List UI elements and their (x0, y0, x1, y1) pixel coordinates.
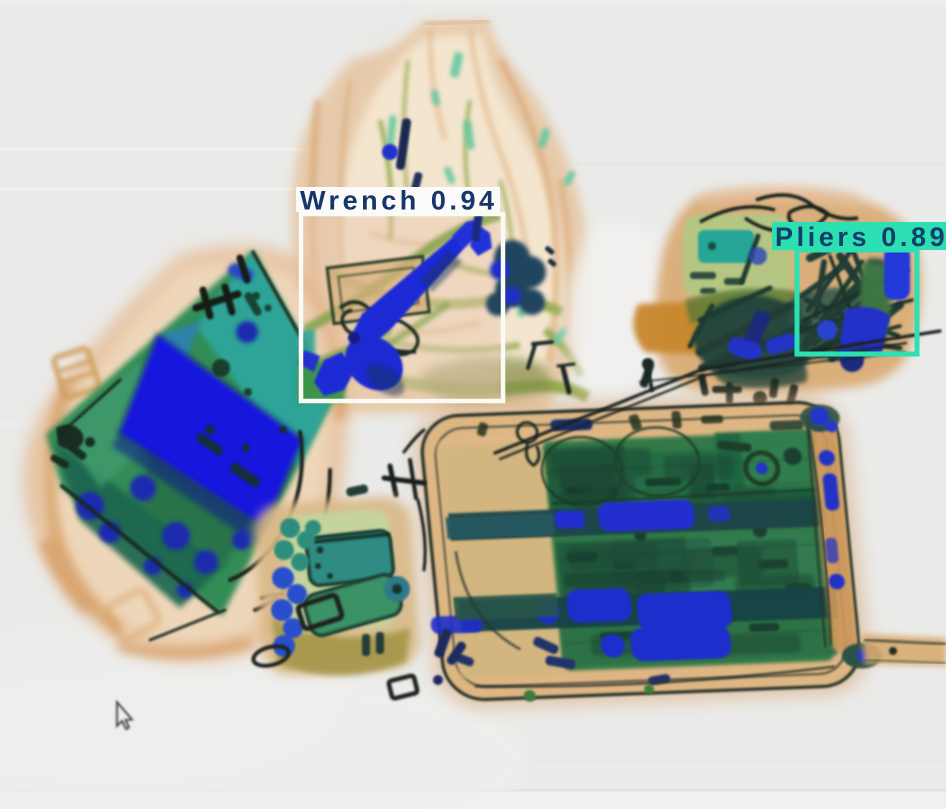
svg-text:Wrench 0.94: Wrench 0.94 (300, 186, 498, 216)
svg-text:Pliers 0.89: Pliers 0.89 (775, 222, 946, 252)
